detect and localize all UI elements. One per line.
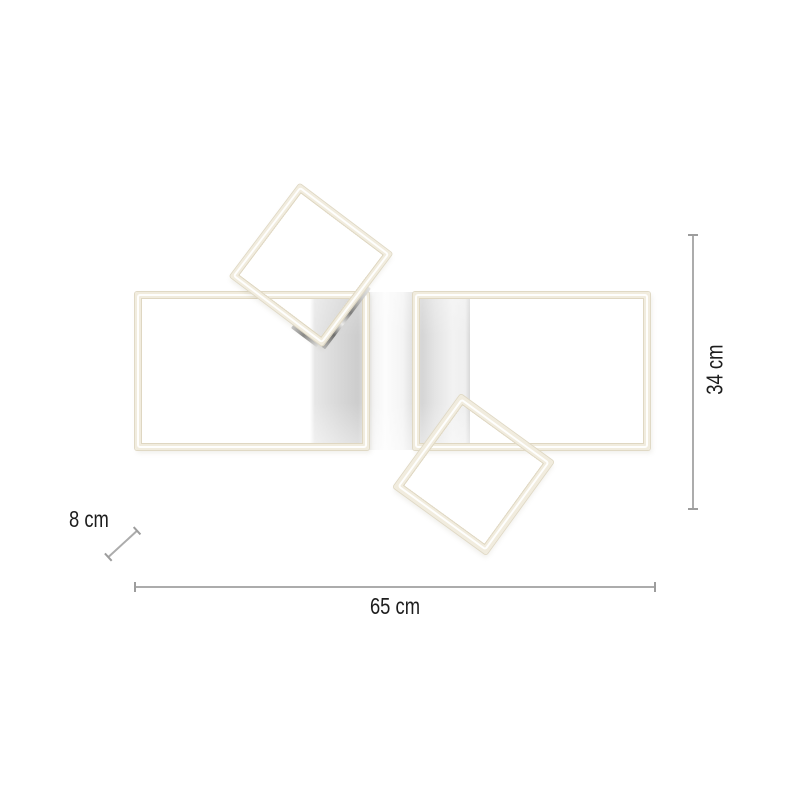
depth-dimension-line <box>108 530 138 557</box>
height-dimension-line <box>692 235 694 509</box>
product-dimension-diagram: 65 cm 34 cm 8 cm <box>0 0 800 800</box>
height-dimension-label: 34 cm <box>702 342 727 398</box>
width-dimension-label: 65 cm <box>187 594 603 619</box>
depth-dimension-label: 8 cm <box>69 507 109 532</box>
width-dimension-line <box>135 586 655 588</box>
